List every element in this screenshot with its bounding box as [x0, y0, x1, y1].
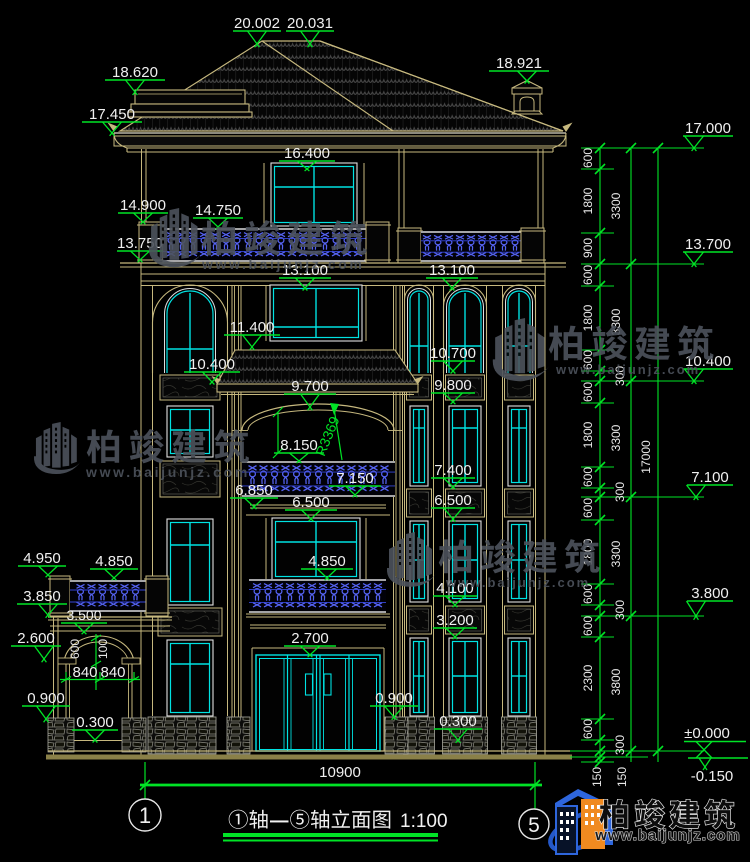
- svg-text:6.500: 6.500: [292, 494, 330, 511]
- svg-text:100: 100: [96, 639, 110, 659]
- svg-text:6.850: 6.850: [235, 482, 273, 499]
- svg-text:www.baijunjz.com: www.baijunjz.com: [201, 256, 364, 272]
- svg-text:5: 5: [528, 814, 540, 837]
- svg-text:2300: 2300: [581, 664, 595, 691]
- svg-text:300: 300: [613, 600, 627, 620]
- svg-text:600: 600: [68, 639, 82, 659]
- svg-text:0.900: 0.900: [375, 690, 413, 707]
- svg-text:-0.150: -0.150: [691, 768, 734, 785]
- svg-text:www.baijunjz.com: www.baijunjz.com: [445, 575, 590, 590]
- svg-text:0.300: 0.300: [76, 714, 114, 731]
- svg-text:600: 600: [581, 616, 595, 636]
- svg-text:18.620: 18.620: [112, 64, 158, 81]
- svg-text:7.100: 7.100: [691, 469, 729, 486]
- svg-text:4.850: 4.850: [308, 553, 346, 570]
- svg-text:150: 150: [615, 767, 629, 787]
- svg-text:3.800: 3.800: [691, 585, 729, 602]
- svg-text:1:100: 1:100: [400, 811, 448, 832]
- svg-text:20.031: 20.031: [287, 15, 333, 32]
- svg-text:1800: 1800: [581, 304, 595, 331]
- svg-text:13.100: 13.100: [429, 262, 475, 279]
- svg-text:4.950: 4.950: [23, 550, 61, 567]
- svg-text:600: 600: [581, 467, 595, 487]
- svg-text:4.850: 4.850: [95, 553, 133, 570]
- svg-text:0.900: 0.900: [27, 690, 65, 707]
- svg-text:3800: 3800: [609, 668, 623, 695]
- svg-text:600: 600: [581, 265, 595, 285]
- svg-text:840: 840: [100, 664, 125, 681]
- svg-text:9.700: 9.700: [291, 378, 329, 395]
- svg-text:14.900: 14.900: [120, 197, 166, 214]
- svg-text:3.500: 3.500: [66, 607, 101, 623]
- svg-text:17.450: 17.450: [89, 106, 135, 123]
- svg-text:3300: 3300: [609, 192, 623, 219]
- svg-text:2.600: 2.600: [17, 630, 55, 647]
- svg-text:600: 600: [581, 382, 595, 402]
- svg-text:600: 600: [581, 148, 595, 168]
- svg-text:150: 150: [590, 767, 604, 787]
- svg-text:www.baijunjz.com: www.baijunjz.com: [555, 362, 700, 377]
- svg-text:3.850: 3.850: [23, 588, 61, 605]
- svg-text:9.800: 9.800: [434, 377, 472, 394]
- svg-text:600: 600: [581, 719, 595, 739]
- svg-text:±0.000: ±0.000: [684, 725, 730, 742]
- svg-text:1800: 1800: [581, 187, 595, 214]
- svg-text:18.921: 18.921: [496, 55, 542, 72]
- svg-text:300: 300: [613, 735, 627, 755]
- svg-text:www.baijunjz.com: www.baijunjz.com: [594, 827, 740, 844]
- svg-text:10900: 10900: [319, 764, 361, 781]
- svg-text:17.000: 17.000: [685, 120, 731, 137]
- svg-text:8.150: 8.150: [280, 437, 318, 454]
- svg-text:11.400: 11.400: [230, 319, 275, 336]
- svg-text:6.500: 6.500: [434, 492, 472, 509]
- svg-text:600: 600: [581, 498, 595, 518]
- svg-text:1: 1: [139, 803, 151, 828]
- svg-text:14.750: 14.750: [195, 202, 241, 219]
- svg-text:20.002: 20.002: [234, 15, 280, 32]
- svg-text:7.150: 7.150: [336, 470, 374, 487]
- svg-text:10.700: 10.700: [430, 345, 476, 362]
- svg-text:0.300: 0.300: [439, 713, 477, 730]
- svg-text:1800: 1800: [581, 421, 595, 448]
- svg-text:3300: 3300: [609, 424, 623, 451]
- svg-text:900: 900: [581, 238, 595, 258]
- svg-text:840: 840: [72, 664, 97, 681]
- svg-text:16.400: 16.400: [284, 145, 330, 162]
- svg-text:10.400: 10.400: [189, 356, 235, 373]
- svg-text:2.700: 2.700: [291, 630, 329, 647]
- svg-text:300: 300: [613, 482, 627, 502]
- svg-text:7.400: 7.400: [434, 462, 472, 479]
- svg-text:17000: 17000: [639, 440, 653, 474]
- svg-text:13.700: 13.700: [685, 236, 731, 253]
- svg-text:3.200: 3.200: [436, 612, 474, 629]
- svg-text:3300: 3300: [609, 540, 623, 567]
- svg-text:www.baijunjz.com: www.baijunjz.com: [85, 464, 250, 480]
